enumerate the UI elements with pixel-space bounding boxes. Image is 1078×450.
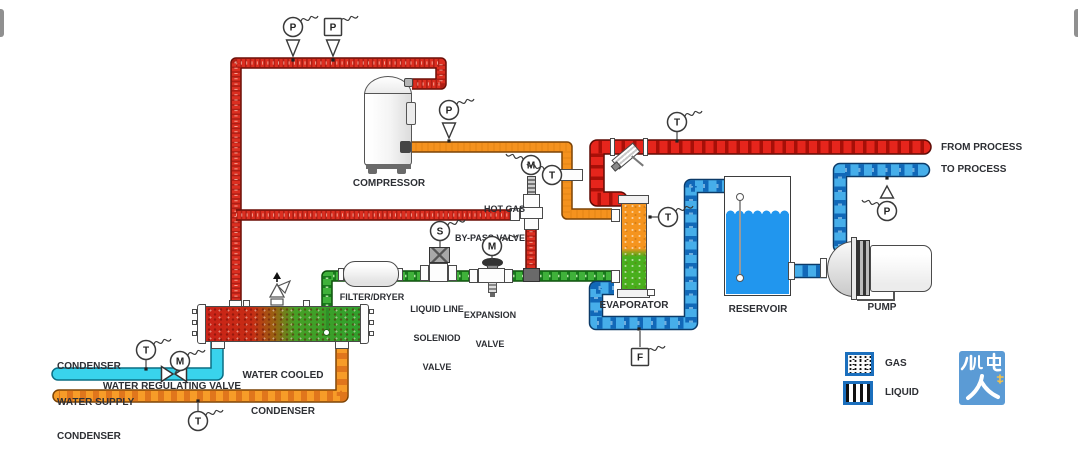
- sensor-bypass-valve-actuator: M: [506, 154, 541, 175]
- sensor-condenser-return-temperature: T: [189, 399, 224, 430]
- svg-text:P: P: [446, 106, 453, 117]
- sensor-layer: PPPMTTTPSMTMTF: [0, 0, 1078, 450]
- svg-text:M: M: [176, 357, 184, 368]
- sensor-chilled-water-flow: F: [632, 327, 666, 365]
- svg-text:T: T: [549, 171, 555, 182]
- sensor-condenser-supply-temperature: T: [137, 339, 172, 371]
- sensor-solenoid-coil: S: [431, 220, 466, 247]
- sensor-expansion-valve-actuator: M: [483, 235, 518, 260]
- svg-text:S: S: [437, 227, 444, 238]
- sensor-regulating-valve-actuator: M: [171, 350, 206, 373]
- sensor-evaporator-temperature: T: [648, 206, 693, 227]
- svg-text:T: T: [665, 213, 671, 224]
- svg-text:P: P: [884, 207, 891, 218]
- sensor-discharge-pressure-1: P: [284, 16, 319, 62]
- svg-text:F: F: [637, 353, 643, 364]
- svg-text:P: P: [330, 23, 337, 34]
- svg-text:T: T: [674, 118, 680, 129]
- sensor-discharge-pressure-2: P: [325, 16, 359, 62]
- svg-text:M: M: [488, 242, 496, 253]
- svg-text:P: P: [290, 23, 297, 34]
- sensor-return-water-temperature: T: [668, 111, 703, 143]
- sensor-suction-pressure: P: [440, 99, 475, 143]
- sensor-supply-pressure: P: [862, 176, 897, 220]
- svg-text:T: T: [195, 417, 201, 428]
- refrigeration-chiller-diagram: COMPRESSOR HOT GAS BY-PASS VALVE FILTER/…: [0, 0, 1078, 450]
- svg-text:T: T: [143, 346, 149, 357]
